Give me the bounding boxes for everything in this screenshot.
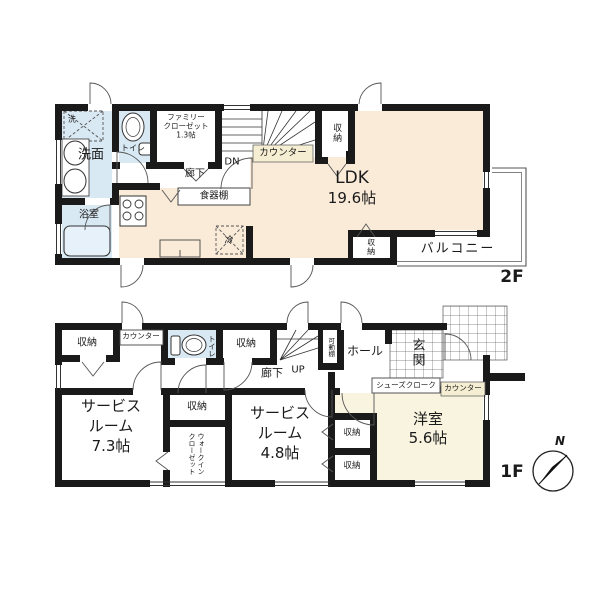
- room-label-storage-top-2f: 収納: [331, 123, 341, 143]
- room-label-storage-mid: 収納: [187, 401, 207, 413]
- room-label-family-closet: ファミリー クローゼット 1.3帖: [164, 113, 209, 140]
- room-label-ldk: LDK 19.6帖: [328, 168, 376, 208]
- room-label-hall: ホール: [347, 345, 383, 359]
- room-label-movable-shelf: 可動棚: [326, 337, 333, 357]
- stairs-up-label: UP: [291, 364, 304, 376]
- compass-icon: [533, 451, 573, 491]
- room-label-toilet-2f: トイレ: [121, 143, 145, 152]
- bathtub-icon: [64, 226, 110, 256]
- toilet-icon-1f: [171, 335, 206, 355]
- room-label-walk-in-closet: ウォークイン クローゼット: [187, 433, 205, 475]
- room-label-storage-bottom-2f: 収納: [366, 238, 375, 256]
- room-label-hallway-1f: 廊下: [261, 368, 283, 381]
- stove-icon: [120, 196, 146, 226]
- room-label-storage-r1: 収納: [343, 429, 360, 439]
- room-label-entrance: 玄関: [409, 338, 424, 368]
- room-label-storage-nw: 収納: [77, 337, 97, 349]
- room-label-toilet-1f: トイレ: [207, 335, 216, 358]
- shoe-cloak-label: シューズクローク: [376, 382, 436, 391]
- counter-label-1f-right: カウンター: [444, 385, 482, 394]
- floor-label-2f: 2F: [500, 268, 523, 288]
- fridge-label: 冷: [224, 236, 233, 246]
- room-label-hallway-2f: 廊下: [185, 168, 205, 180]
- room-label-bathroom: 浴室: [79, 209, 99, 221]
- floorplan-linework: [0, 0, 600, 600]
- room-label-service-room-b: サービス ルーム 4.8帖: [250, 403, 310, 463]
- floorplan-canvas: 洗 洗面 トイレ ファミリー クローゼット 1.3帖 廊下 DN カウンター 収…: [0, 0, 600, 600]
- room-label-balcony: バルコニー: [421, 243, 496, 258]
- washer-label: 洗: [68, 114, 76, 123]
- porch-tile: [443, 306, 507, 360]
- floor-label-1f: 1F: [500, 463, 523, 483]
- room-label-service-room-a: サービス ルーム 7.3帖: [81, 396, 141, 456]
- room-label-washroom: 洗面: [78, 149, 104, 164]
- room-label-storage-top-1f: 収納: [236, 338, 256, 350]
- counter-label-2f: カウンター: [259, 149, 307, 160]
- counter-label-1f-left: カウンター: [122, 333, 160, 342]
- stairs-dn-label: DN: [224, 156, 239, 168]
- compass-north-label: N: [555, 435, 565, 449]
- room-label-storage-r2: 収納: [343, 462, 360, 472]
- room-label-western-room: 洋室 5.6帖: [409, 410, 448, 448]
- cupboard-label: 食器棚: [200, 192, 229, 203]
- stairs-up-icon: [277, 330, 318, 360]
